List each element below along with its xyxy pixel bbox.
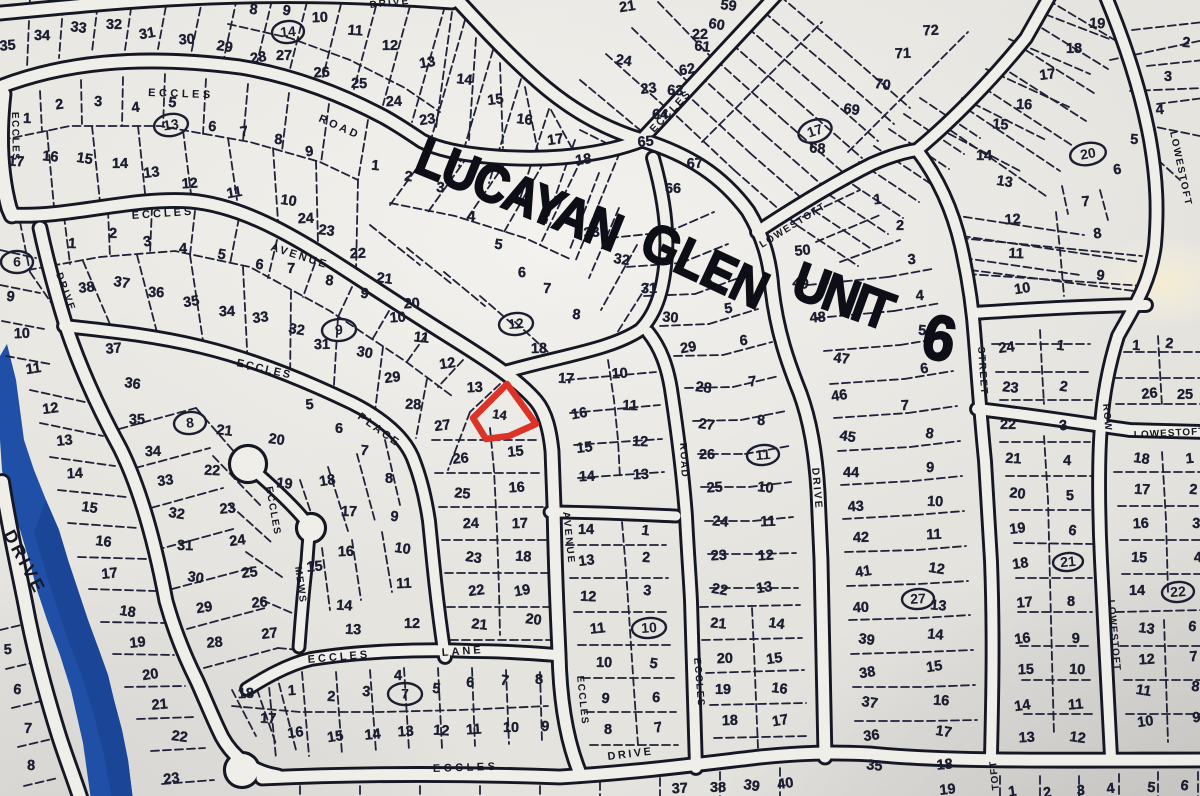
svg-text:18: 18	[515, 548, 532, 565]
svg-text:14: 14	[976, 148, 992, 164]
svg-text:16: 16	[933, 693, 950, 710]
svg-text:16: 16	[338, 544, 355, 561]
svg-text:21: 21	[618, 0, 636, 16]
svg-text:6: 6	[13, 682, 22, 699]
svg-text:7: 7	[24, 721, 32, 737]
svg-text:24: 24	[463, 516, 480, 533]
svg-text:62: 62	[678, 61, 697, 80]
svg-text:5: 5	[3, 642, 12, 658]
svg-text:28: 28	[405, 397, 422, 414]
svg-text:11: 11	[926, 527, 942, 544]
svg-text:22: 22	[1000, 417, 1016, 433]
svg-text:12: 12	[632, 434, 649, 451]
svg-text:18: 18	[1011, 555, 1029, 573]
svg-text:40: 40	[776, 775, 794, 793]
svg-text:11: 11	[1135, 682, 1153, 700]
svg-text:10: 10	[393, 540, 411, 558]
svg-text:7: 7	[1189, 649, 1198, 666]
svg-text:6: 6	[1188, 619, 1197, 636]
svg-text:33: 33	[252, 309, 270, 327]
svg-text:32: 32	[106, 17, 122, 33]
svg-text:37: 37	[860, 694, 878, 712]
svg-text:8: 8	[572, 307, 582, 324]
svg-text:1: 1	[371, 158, 380, 175]
svg-text:38: 38	[710, 780, 726, 796]
svg-text:13: 13	[578, 552, 596, 570]
svg-text:9: 9	[390, 509, 400, 526]
svg-text:5: 5	[168, 95, 178, 112]
svg-text:7: 7	[287, 261, 295, 277]
svg-text:27: 27	[697, 416, 715, 434]
svg-text:8: 8	[274, 132, 283, 149]
svg-text:28: 28	[206, 634, 223, 651]
svg-text:18: 18	[574, 151, 592, 169]
svg-text:12: 12	[1138, 651, 1155, 668]
svg-text:21: 21	[1059, 553, 1076, 570]
svg-text:32: 32	[287, 321, 305, 339]
svg-text:10: 10	[641, 619, 658, 636]
svg-text:19: 19	[276, 475, 294, 493]
svg-text:3: 3	[643, 583, 652, 600]
svg-text:11: 11	[466, 721, 482, 738]
svg-text:16: 16	[508, 479, 525, 496]
svg-text:4: 4	[915, 288, 924, 304]
svg-text:17: 17	[1134, 482, 1151, 499]
svg-text:24: 24	[998, 339, 1016, 357]
svg-text:21: 21	[1005, 450, 1022, 467]
svg-text:22: 22	[468, 582, 486, 600]
svg-text:19: 19	[129, 634, 147, 652]
svg-text:3: 3	[1192, 516, 1200, 532]
svg-text:18: 18	[936, 756, 953, 773]
svg-text:34: 34	[145, 444, 161, 460]
svg-text:18: 18	[118, 603, 136, 621]
svg-text:10: 10	[1013, 280, 1031, 298]
svg-text:23: 23	[219, 500, 236, 517]
svg-text:8: 8	[385, 471, 393, 487]
svg-text:13: 13	[162, 115, 180, 133]
svg-text:8: 8	[1191, 679, 1200, 696]
svg-text:28: 28	[249, 49, 267, 67]
svg-text:25: 25	[241, 564, 259, 582]
svg-text:15: 15	[507, 443, 525, 461]
svg-text:8: 8	[27, 758, 35, 774]
svg-text:28: 28	[695, 379, 713, 397]
svg-text:11: 11	[1008, 246, 1024, 263]
svg-text:ECCLES: ECCLES	[433, 761, 499, 775]
svg-text:1: 1	[68, 236, 77, 252]
svg-text:37: 37	[671, 781, 688, 796]
svg-text:21: 21	[151, 696, 168, 713]
svg-text:38: 38	[858, 664, 876, 682]
svg-text:15: 15	[487, 91, 505, 109]
svg-text:30: 30	[662, 309, 679, 326]
svg-text:8: 8	[1067, 594, 1075, 610]
svg-text:30: 30	[178, 31, 195, 48]
svg-text:31: 31	[177, 538, 193, 554]
svg-text:41: 41	[854, 563, 872, 581]
svg-text:25: 25	[351, 76, 367, 92]
svg-text:5: 5	[305, 397, 314, 414]
svg-text:11: 11	[622, 398, 638, 414]
svg-text:12: 12	[433, 722, 450, 739]
svg-text:17: 17	[260, 711, 277, 728]
svg-text:22: 22	[204, 463, 221, 480]
svg-text:6: 6	[208, 119, 217, 136]
svg-text:17: 17	[546, 131, 564, 149]
svg-text:15: 15	[1018, 662, 1035, 679]
svg-text:23: 23	[318, 222, 336, 240]
svg-text:60: 60	[707, 16, 725, 34]
svg-text:16: 16	[95, 533, 113, 551]
svg-text:5: 5	[1147, 780, 1156, 796]
svg-text:24: 24	[386, 94, 403, 111]
svg-text:21: 21	[710, 615, 727, 632]
svg-text:30: 30	[355, 344, 374, 363]
svg-text:15: 15	[75, 150, 93, 168]
svg-text:20: 20	[717, 651, 734, 668]
svg-text:26: 26	[313, 64, 330, 81]
svg-text:15: 15	[326, 728, 344, 746]
svg-text:18: 18	[722, 713, 739, 730]
svg-text:4: 4	[1063, 453, 1072, 469]
svg-text:15: 15	[992, 116, 1009, 133]
svg-text:8: 8	[325, 273, 335, 290]
svg-text:13: 13	[466, 380, 483, 397]
svg-text:11: 11	[755, 446, 771, 463]
svg-text:14: 14	[66, 466, 83, 483]
svg-text:27: 27	[434, 417, 452, 435]
svg-text:16: 16	[1014, 630, 1032, 648]
svg-text:36: 36	[123, 375, 141, 393]
svg-text:12: 12	[757, 547, 774, 564]
svg-text:32: 32	[167, 505, 185, 523]
svg-text:6: 6	[13, 254, 21, 270]
svg-text:4: 4	[467, 209, 476, 226]
svg-text:40: 40	[853, 600, 870, 617]
svg-text:27: 27	[276, 48, 292, 64]
svg-text:24: 24	[614, 52, 632, 70]
svg-text:15: 15	[1131, 550, 1148, 567]
svg-text:32: 32	[612, 251, 630, 269]
svg-text:35: 35	[182, 293, 200, 311]
svg-text:17: 17	[512, 516, 529, 533]
svg-text:16: 16	[1016, 97, 1033, 114]
svg-text:3: 3	[362, 684, 371, 701]
svg-text:23: 23	[640, 80, 658, 98]
svg-text:14: 14	[364, 726, 381, 743]
svg-text:11: 11	[347, 22, 363, 39]
svg-text:15: 15	[80, 499, 98, 517]
svg-text:2: 2	[1189, 482, 1198, 499]
svg-text:2: 2	[1165, 336, 1174, 353]
svg-text:12: 12	[438, 355, 456, 373]
svg-text:5: 5	[432, 681, 442, 698]
svg-text:15: 15	[306, 558, 323, 575]
svg-text:23: 23	[163, 770, 181, 788]
svg-text:34: 34	[219, 304, 235, 320]
svg-text:13: 13	[633, 467, 650, 484]
svg-text:7: 7	[901, 398, 910, 414]
svg-text:17: 17	[771, 712, 790, 731]
svg-text:1: 1	[287, 683, 296, 699]
svg-text:12: 12	[382, 38, 398, 54]
svg-text:2: 2	[1182, 35, 1191, 52]
svg-text:7: 7	[543, 281, 552, 297]
svg-text:34: 34	[34, 28, 50, 44]
svg-text:14: 14	[1129, 583, 1145, 599]
svg-text:35: 35	[129, 412, 145, 428]
svg-text:26: 26	[1141, 385, 1159, 403]
svg-text:37: 37	[112, 274, 131, 293]
svg-text:3: 3	[1164, 69, 1172, 85]
svg-text:18: 18	[1132, 450, 1150, 468]
svg-text:6: 6	[335, 421, 343, 437]
svg-text:12: 12	[181, 175, 198, 192]
svg-text:8: 8	[757, 413, 765, 429]
svg-text:35: 35	[866, 757, 884, 775]
svg-text:7: 7	[401, 686, 409, 702]
svg-text:5: 5	[1130, 132, 1139, 148]
svg-text:47: 47	[833, 350, 851, 368]
svg-text:10: 10	[503, 720, 519, 736]
svg-text:24: 24	[712, 513, 729, 530]
svg-text:4: 4	[1106, 781, 1116, 796]
svg-text:6: 6	[466, 675, 475, 691]
svg-text:12: 12	[1004, 211, 1021, 228]
svg-text:18: 18	[531, 341, 547, 357]
svg-text:36: 36	[863, 727, 881, 745]
svg-text:12: 12	[1068, 729, 1086, 747]
svg-text:18: 18	[318, 472, 336, 490]
svg-text:27: 27	[261, 625, 279, 643]
svg-text:6: 6	[518, 265, 526, 281]
svg-text:2: 2	[327, 689, 336, 706]
svg-text:64: 64	[652, 107, 668, 123]
svg-text:65: 65	[637, 133, 654, 150]
svg-text:30: 30	[186, 569, 204, 587]
svg-text:24: 24	[298, 211, 315, 228]
svg-text:10: 10	[279, 192, 297, 210]
svg-text:9: 9	[335, 321, 344, 338]
svg-text:1: 1	[23, 111, 31, 127]
svg-text:20: 20	[267, 431, 285, 449]
svg-text:11: 11	[760, 514, 776, 531]
svg-text:14: 14	[112, 156, 128, 172]
svg-text:13: 13	[397, 723, 414, 740]
svg-text:39: 39	[742, 777, 760, 795]
svg-text:67: 67	[686, 156, 703, 173]
svg-text:33: 33	[156, 472, 174, 490]
svg-text:11: 11	[396, 576, 412, 593]
svg-text:2: 2	[642, 550, 651, 566]
svg-text:4: 4	[1194, 550, 1200, 566]
svg-text:1: 1	[1185, 451, 1194, 468]
svg-text:19: 19	[1009, 520, 1027, 538]
svg-text:13: 13	[143, 164, 161, 182]
svg-text:10: 10	[927, 494, 944, 511]
svg-text:63: 63	[667, 83, 684, 100]
svg-text:45: 45	[838, 428, 856, 446]
svg-text:16: 16	[1132, 516, 1149, 533]
svg-text:3: 3	[94, 94, 103, 110]
svg-text:11: 11	[225, 184, 243, 202]
svg-text:17: 17	[341, 504, 357, 520]
svg-text:25: 25	[454, 485, 471, 502]
svg-text:14: 14	[336, 597, 353, 614]
svg-text:20: 20	[525, 611, 543, 629]
svg-text:17: 17	[101, 565, 119, 583]
svg-text:10: 10	[1136, 713, 1154, 731]
svg-text:27: 27	[910, 590, 927, 607]
svg-text:19: 19	[939, 781, 957, 796]
svg-text:16: 16	[516, 111, 534, 129]
svg-text:10: 10	[14, 326, 31, 343]
svg-text:7: 7	[360, 443, 370, 460]
svg-text:19: 19	[715, 682, 731, 698]
svg-text:22: 22	[692, 27, 708, 43]
svg-text:13: 13	[345, 622, 362, 639]
svg-text:14: 14	[927, 626, 944, 643]
svg-text:10: 10	[389, 309, 406, 326]
svg-text:14: 14	[1013, 697, 1031, 715]
svg-text:23: 23	[1002, 379, 1020, 397]
svg-text:72: 72	[922, 23, 939, 40]
svg-text:8: 8	[604, 722, 612, 738]
svg-text:15: 15	[576, 439, 594, 457]
svg-text:35: 35	[0, 37, 16, 54]
svg-text:12: 12	[580, 589, 597, 606]
svg-text:37: 37	[105, 340, 122, 357]
svg-text:26: 26	[699, 447, 715, 463]
svg-text:20: 20	[403, 295, 420, 312]
svg-text:9: 9	[1192, 710, 1200, 727]
svg-text:33: 33	[70, 19, 88, 37]
svg-text:36: 36	[148, 285, 165, 302]
svg-text:11: 11	[25, 360, 42, 378]
svg-text:14: 14	[456, 71, 474, 89]
svg-text:18: 18	[238, 686, 255, 703]
svg-text:19: 19	[1089, 16, 1106, 33]
svg-text:4: 4	[394, 668, 402, 684]
svg-text:23: 23	[464, 549, 482, 567]
svg-text:7: 7	[1081, 194, 1090, 211]
svg-text:13: 13	[1138, 620, 1156, 638]
svg-text:26: 26	[452, 450, 469, 467]
svg-text:17: 17	[8, 154, 25, 171]
svg-text:2: 2	[109, 226, 117, 242]
svg-text:20: 20	[1009, 485, 1027, 503]
svg-text:1: 1	[1132, 338, 1141, 354]
svg-text:29: 29	[215, 38, 233, 56]
svg-text:17: 17	[1016, 594, 1033, 611]
svg-text:15: 15	[925, 658, 943, 676]
svg-text:59: 59	[720, 0, 738, 15]
svg-text:13: 13	[56, 432, 74, 450]
svg-text:4: 4	[179, 241, 187, 257]
svg-text:22: 22	[170, 728, 188, 746]
svg-text:42: 42	[853, 530, 869, 546]
svg-text:14: 14	[279, 23, 296, 40]
svg-text:31: 31	[138, 25, 157, 44]
svg-text:4: 4	[1155, 102, 1164, 118]
svg-text:24: 24	[229, 532, 247, 550]
svg-text:13: 13	[418, 54, 436, 72]
svg-text:10: 10	[312, 10, 329, 27]
svg-text:69: 69	[842, 101, 860, 119]
svg-text:26: 26	[251, 594, 268, 611]
svg-text:22: 22	[710, 581, 729, 600]
svg-text:6: 6	[739, 333, 748, 350]
svg-text:46: 46	[830, 387, 848, 405]
svg-text:29: 29	[195, 599, 213, 617]
svg-text:21: 21	[216, 422, 234, 440]
svg-text:10: 10	[611, 365, 628, 382]
svg-text:44: 44	[843, 465, 859, 481]
svg-text:70: 70	[873, 76, 891, 94]
svg-text:9: 9	[1072, 631, 1081, 647]
svg-text:43: 43	[847, 499, 864, 516]
svg-text:14: 14	[579, 469, 596, 486]
svg-text:16: 16	[287, 724, 305, 742]
svg-text:22: 22	[1170, 583, 1187, 600]
svg-text:11: 11	[1067, 696, 1084, 713]
svg-text:14: 14	[578, 522, 594, 538]
svg-text:12: 12	[927, 560, 945, 578]
svg-text:38: 38	[78, 279, 96, 297]
svg-text:3: 3	[907, 252, 916, 269]
svg-text:21: 21	[376, 270, 394, 288]
svg-text:10: 10	[757, 479, 775, 497]
svg-text:20: 20	[1079, 144, 1097, 162]
svg-text:10: 10	[596, 655, 612, 671]
svg-text:66: 66	[665, 181, 681, 197]
svg-text:18: 18	[1066, 41, 1082, 57]
svg-text:29: 29	[384, 369, 402, 387]
svg-text:13: 13	[995, 173, 1013, 191]
svg-text:22: 22	[350, 246, 367, 263]
svg-text:13: 13	[755, 579, 773, 597]
svg-text:13: 13	[930, 597, 947, 614]
svg-text:71: 71	[895, 46, 912, 63]
svg-text:12: 12	[42, 400, 60, 418]
svg-text:12: 12	[507, 315, 524, 332]
svg-text:8: 8	[535, 672, 543, 688]
svg-text:5: 5	[1066, 488, 1074, 504]
svg-text:23: 23	[710, 548, 727, 565]
svg-text:16: 16	[42, 148, 59, 165]
svg-text:16: 16	[570, 405, 589, 424]
svg-text:2: 2	[896, 218, 904, 234]
svg-text:11: 11	[589, 620, 606, 638]
svg-text:13: 13	[1018, 729, 1035, 746]
svg-text:17: 17	[1039, 66, 1057, 84]
svg-text:17: 17	[934, 723, 952, 741]
svg-text:25: 25	[1177, 387, 1193, 403]
svg-text:31: 31	[641, 281, 657, 297]
svg-text:21: 21	[471, 616, 489, 634]
svg-text:15: 15	[765, 650, 783, 668]
svg-text:1: 1	[873, 192, 883, 209]
svg-text:11: 11	[413, 329, 430, 347]
svg-text:ROAD: ROAD	[677, 443, 690, 479]
svg-text:12: 12	[404, 616, 420, 632]
svg-text:19: 19	[513, 582, 532, 601]
svg-text:10: 10	[1069, 662, 1086, 679]
svg-text:14: 14	[491, 406, 508, 423]
svg-text:20: 20	[141, 666, 159, 684]
svg-text:6: 6	[652, 690, 661, 706]
